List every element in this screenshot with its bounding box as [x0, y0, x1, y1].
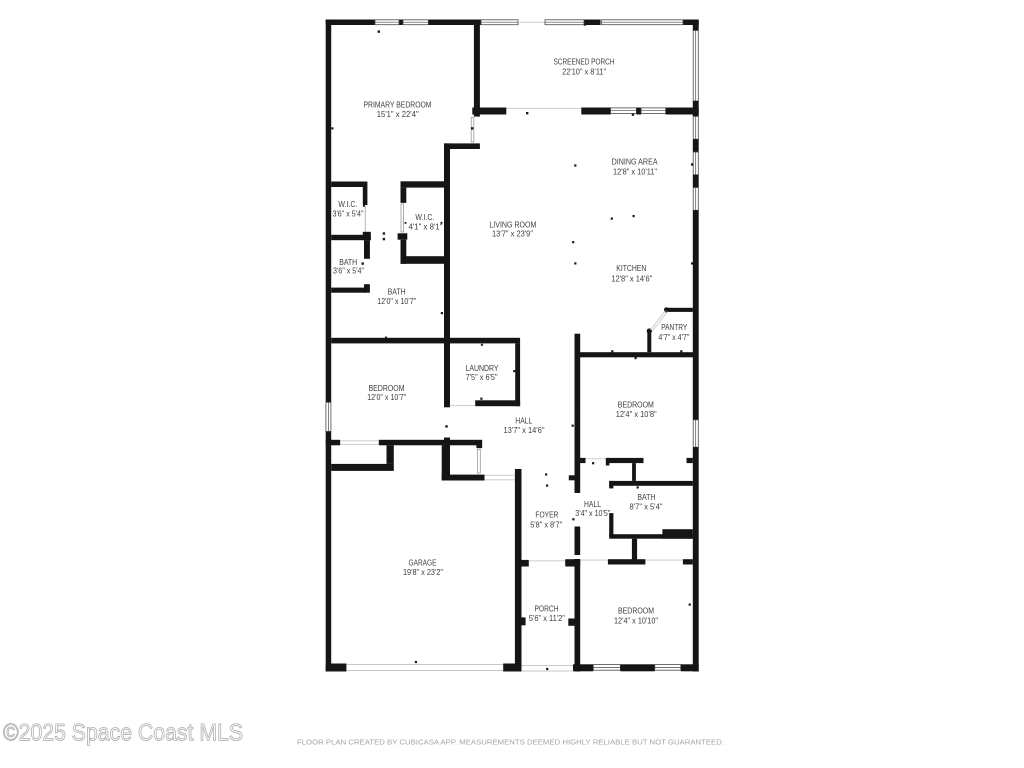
svg-text:LIVING ROOM: LIVING ROOM	[489, 221, 536, 230]
svg-text:5'8" x 8'7": 5'8" x 8'7"	[530, 520, 562, 529]
svg-text:W.I.C.: W.I.C.	[338, 200, 357, 209]
svg-text:PORCH: PORCH	[535, 604, 559, 613]
svg-text:BATH: BATH	[388, 287, 406, 296]
svg-text:4'1" x 8'1": 4'1" x 8'1"	[409, 222, 443, 231]
svg-text:12'4" x 10'10": 12'4" x 10'10"	[614, 616, 658, 625]
svg-text:12'8" x 14'6": 12'8" x 14'6"	[611, 274, 652, 283]
svg-text:LAUNDRY: LAUNDRY	[466, 364, 499, 373]
svg-text:DINING AREA: DINING AREA	[612, 158, 658, 167]
svg-text:12'8" x 10'11": 12'8" x 10'11"	[613, 167, 657, 176]
svg-text:15'1" x 22'4": 15'1" x 22'4"	[377, 110, 419, 119]
svg-text:4'7" x 4'7": 4'7" x 4'7"	[658, 333, 689, 342]
svg-text:22'10" x 8'11": 22'10" x 8'11"	[562, 67, 606, 76]
svg-text:13'7" x 23'9": 13'7" x 23'9"	[492, 230, 533, 239]
svg-text:FOYER: FOYER	[535, 511, 558, 520]
svg-text:PANTRY: PANTRY	[661, 323, 687, 332]
svg-text:19'8" x 23'2": 19'8" x 23'2"	[403, 568, 443, 577]
svg-text:3'4" x 10'5": 3'4" x 10'5"	[575, 509, 610, 518]
svg-text:BEDROOM: BEDROOM	[618, 607, 654, 616]
svg-text:12'0" x 10'7": 12'0" x 10'7"	[367, 393, 406, 402]
svg-text:12'0" x 10'7": 12'0" x 10'7"	[377, 297, 416, 306]
svg-text:BATH: BATH	[339, 258, 357, 267]
svg-text:3'6" x 5'4": 3'6" x 5'4"	[333, 209, 364, 218]
svg-text:BEDROOM: BEDROOM	[369, 384, 405, 393]
svg-text:W.I.C.: W.I.C.	[415, 213, 434, 222]
svg-text:GARAGE: GARAGE	[409, 559, 437, 568]
svg-text:KITCHEN: KITCHEN	[616, 264, 646, 273]
svg-text:BEDROOM: BEDROOM	[618, 400, 654, 409]
svg-text:5'6" x 11'2": 5'6" x 11'2"	[529, 614, 565, 623]
svg-text:8'7" x 5'4": 8'7" x 5'4"	[630, 503, 663, 512]
svg-text:HALL: HALL	[584, 500, 601, 509]
svg-text:12'4" x 10'8": 12'4" x 10'8"	[616, 410, 657, 419]
svg-text:PRIMARY BEDROOM: PRIMARY BEDROOM	[364, 100, 432, 109]
svg-text:HALL: HALL	[515, 417, 532, 426]
svg-text:BATH: BATH	[637, 493, 655, 502]
svg-text:13'7" x 14'6": 13'7" x 14'6"	[504, 426, 545, 435]
svg-text:FLOOR PLAN CREATED BY CUBICASA: FLOOR PLAN CREATED BY CUBICASA APP. MEAS…	[297, 737, 724, 746]
svg-text:©2025 Space Coast MLS: ©2025 Space Coast MLS	[3, 720, 243, 747]
svg-text:SCREENED PORCH: SCREENED PORCH	[554, 57, 615, 66]
svg-text:7'5" x 6'5": 7'5" x 6'5"	[466, 373, 498, 382]
svg-text:3'6" x 5'4": 3'6" x 5'4"	[333, 267, 364, 276]
